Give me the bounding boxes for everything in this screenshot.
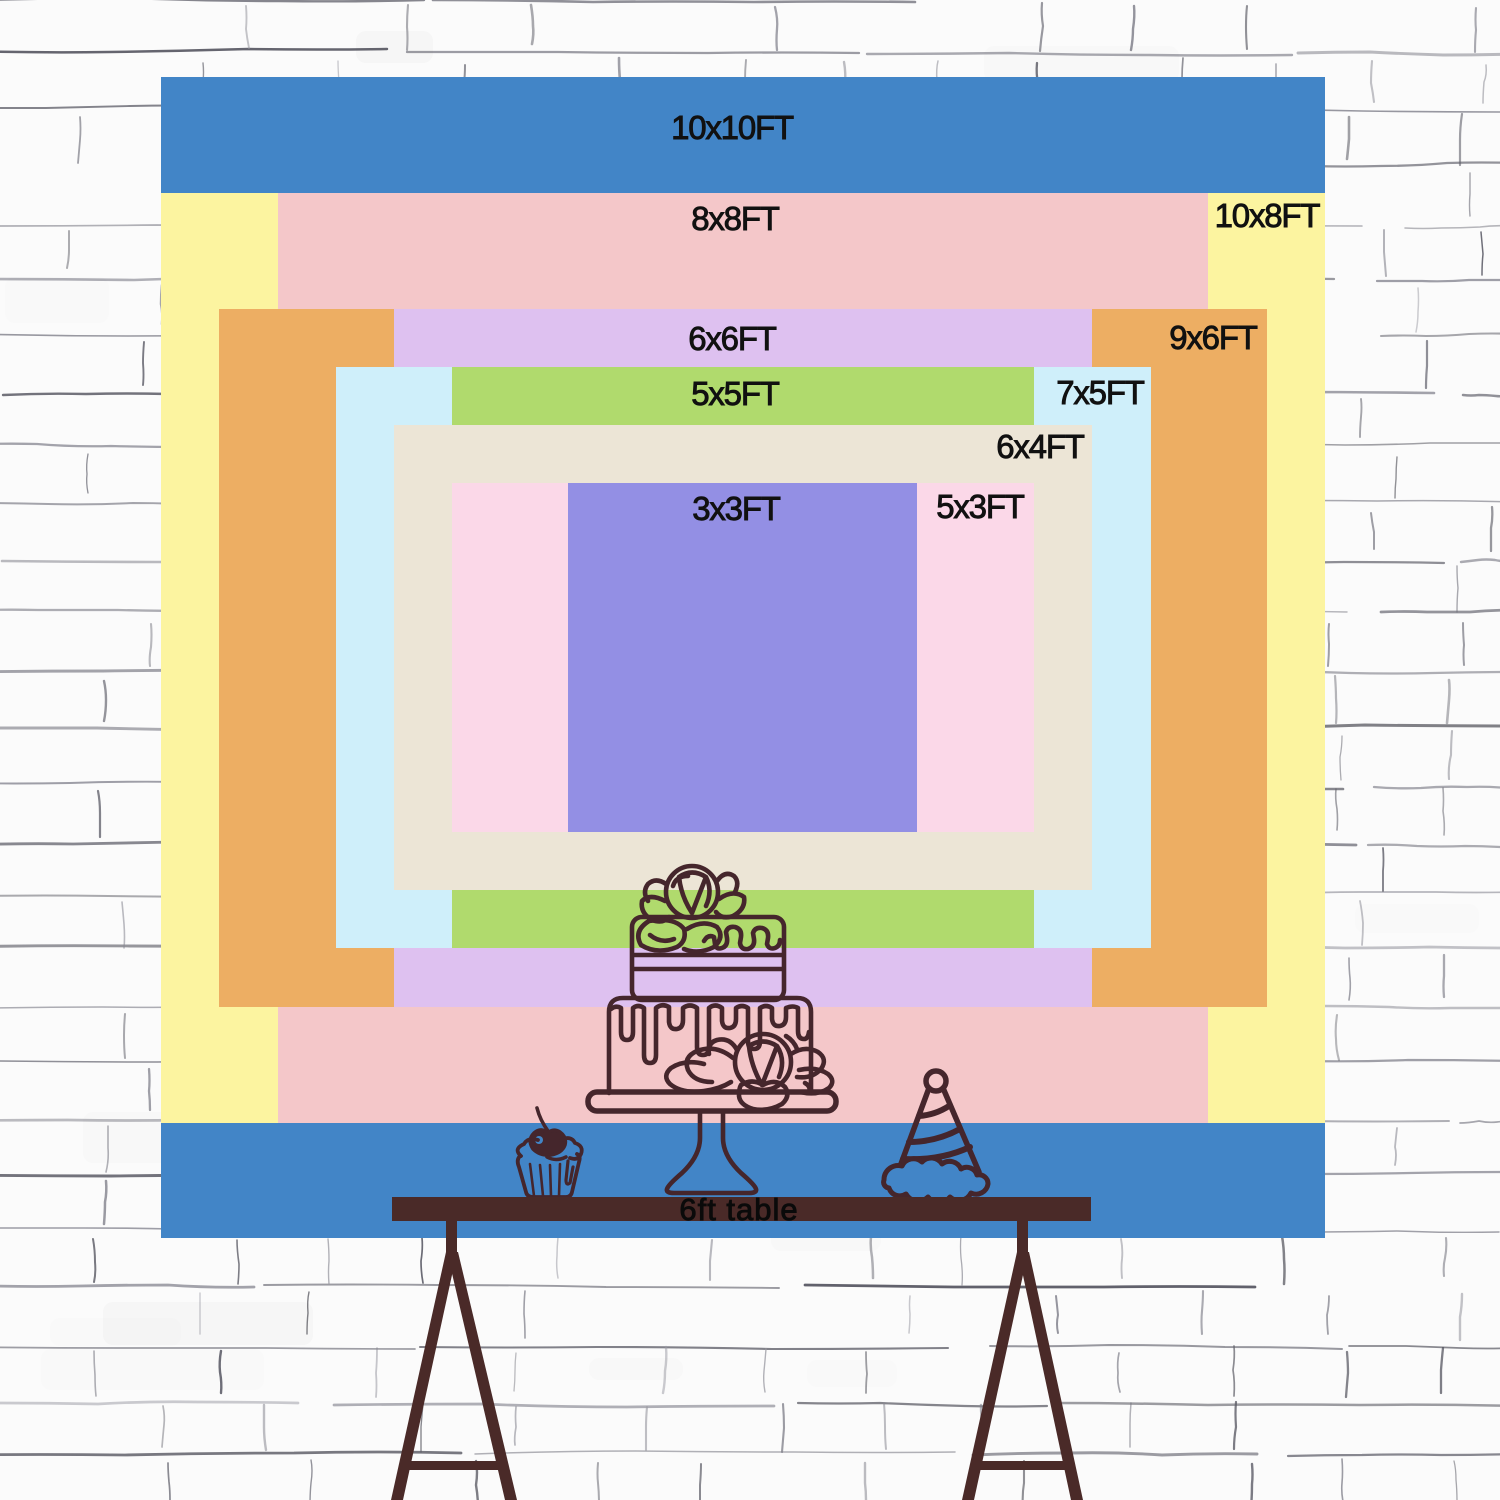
svg-text:3x3FT: 3x3FT: [692, 490, 781, 527]
svg-text:6x6FT: 6x6FT: [688, 320, 777, 357]
svg-text:7x5FT: 7x5FT: [1056, 374, 1145, 411]
svg-text:5x5FT: 5x5FT: [691, 375, 780, 412]
svg-text:10x10FT: 10x10FT: [671, 109, 794, 146]
svg-text:6ft table: 6ft table: [679, 1192, 798, 1227]
svg-text:6x4FT: 6x4FT: [996, 428, 1085, 465]
svg-text:8x8FT: 8x8FT: [691, 200, 780, 237]
svg-text:9x6FT: 9x6FT: [1169, 319, 1258, 356]
svg-text:10x8FT: 10x8FT: [1215, 197, 1321, 234]
svg-text:5x3FT: 5x3FT: [936, 488, 1025, 525]
